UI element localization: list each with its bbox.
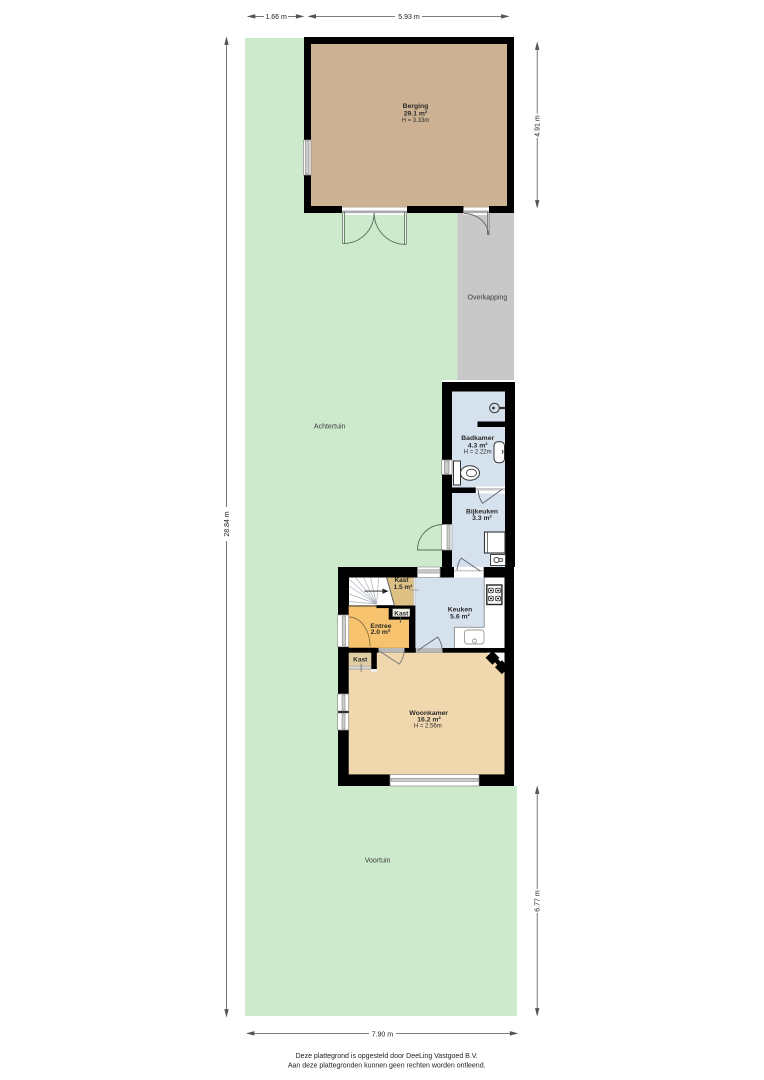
svg-text:Voortuin: Voortuin: [365, 858, 391, 865]
svg-text:Deze plattegrond is opgesteld: Deze plattegrond is opgesteld door DeeLi…: [296, 1053, 478, 1060]
svg-text:Badkamer: Badkamer: [461, 435, 494, 442]
svg-text:Berging: Berging: [403, 103, 429, 110]
svg-text:2.0 m²: 2.0 m²: [371, 629, 391, 636]
svg-text:Kast: Kast: [353, 656, 368, 663]
svg-text:H = 2.56m: H = 2.56m: [414, 724, 442, 730]
svg-text:5.93 m: 5.93 m: [398, 14, 420, 21]
svg-text:Overkapping: Overkapping: [468, 295, 508, 302]
svg-text:7.90 m: 7.90 m: [372, 1031, 394, 1038]
svg-text:4.91 m: 4.91 m: [534, 115, 541, 137]
svg-text:Aan deze plattegronden kunnen: Aan deze plattegronden kunnen geen recht…: [288, 1063, 486, 1070]
svg-text:Kast: Kast: [394, 577, 409, 584]
svg-text:29.1 m²: 29.1 m²: [404, 110, 428, 117]
svg-text:6.77 m: 6.77 m: [534, 890, 541, 912]
svg-text:H = 2.22m: H = 2.22m: [464, 450, 492, 456]
svg-text:Achtertuin: Achtertuin: [314, 424, 346, 431]
svg-text:H = 3.33m: H = 3.33m: [402, 118, 430, 124]
svg-text:1.66 m: 1.66 m: [265, 14, 287, 21]
svg-text:28.84 m: 28.84 m: [224, 511, 231, 536]
svg-text:5.6 m²: 5.6 m²: [450, 613, 470, 620]
svg-text:Kast: Kast: [394, 610, 409, 617]
svg-text:4.3 m²: 4.3 m²: [468, 442, 488, 449]
svg-text:3.3 m²: 3.3 m²: [472, 515, 492, 522]
